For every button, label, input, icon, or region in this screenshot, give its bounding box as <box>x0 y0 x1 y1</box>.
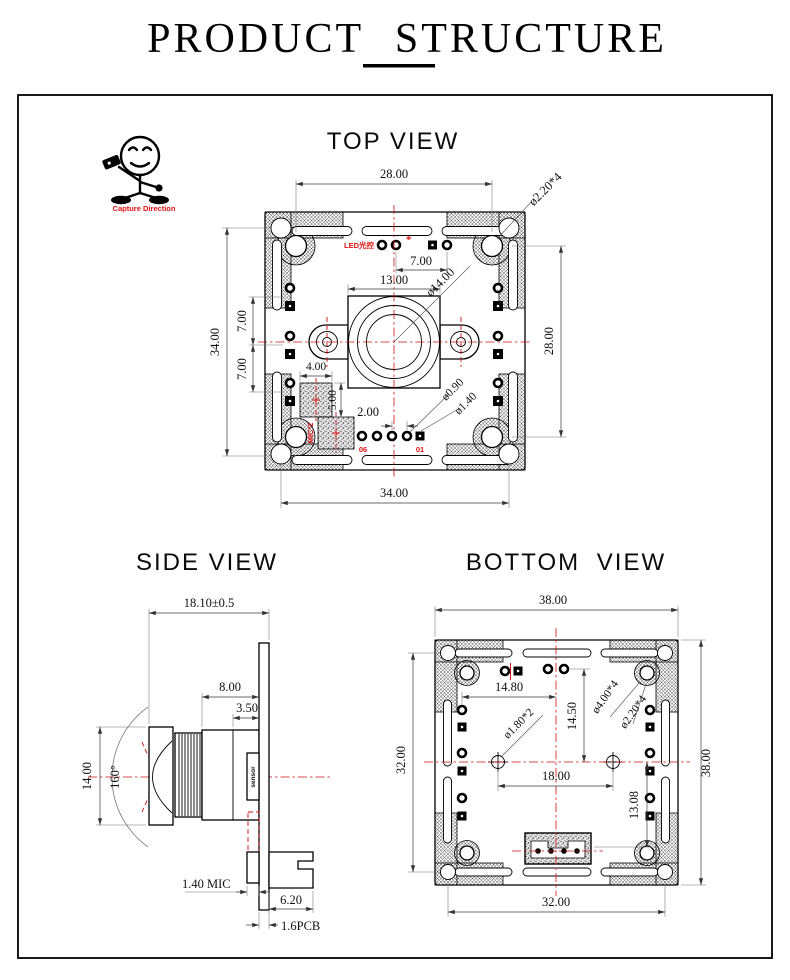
dim-led-pitch-lower: 7.00 <box>235 358 249 380</box>
led-label: LED光控 <box>344 240 374 250</box>
bottom-view: BOTTOM VIEW <box>394 549 713 917</box>
sensor-label: sensor <box>250 766 257 788</box>
dim-pcb-thickness: 1.6PCB <box>281 919 320 933</box>
top-view: TOP VIEW <box>208 128 566 508</box>
page-title: PRODUCT STRUCTURE <box>147 16 667 62</box>
dim-right-28: 28.00 <box>542 327 556 355</box>
side-mic <box>247 852 259 883</box>
title-underline <box>363 64 435 68</box>
dim-corner-hole: ø2.20*4 <box>526 169 565 208</box>
dim-lens-14: 14.00 <box>80 762 94 790</box>
top-view-title: TOP VIEW <box>327 128 459 155</box>
dim-flange-depth: 3.50 <box>236 701 258 715</box>
dim-pad-pitch: 2.00 <box>357 405 379 419</box>
dim-fov: 160° <box>108 765 122 789</box>
dim-led-offset: 7.00 <box>410 254 432 268</box>
bottom-view-title: BOTTOM VIEW <box>466 549 666 576</box>
side-view-title: SIDE VIEW <box>136 549 278 576</box>
side-pcb <box>259 643 269 910</box>
dim-bv-14-80: 14.80 <box>495 680 523 694</box>
dim-bv-14-50: 14.50 <box>565 702 579 730</box>
product-structure-drawing: PRODUCT STRUCTURE Capture Direction TOP … <box>0 0 790 980</box>
side-connector <box>269 852 313 888</box>
dim-bv-bottom-32: 32.00 <box>542 895 570 909</box>
dim-bv-left-32: 32.00 <box>394 746 408 774</box>
mic-label: MIC*2 <box>306 423 315 444</box>
dim-holder-13: 13.00 <box>380 273 408 287</box>
dim-led-pitch-upper: 7.00 <box>235 310 249 332</box>
dim-mic-w: 4.00 <box>306 361 326 373</box>
dim-mic-thickness: 1.40 MIC <box>182 877 231 891</box>
led-mark: * <box>406 234 412 246</box>
pin-label-01: 01 <box>416 445 424 454</box>
dim-bv-top-38: 38.00 <box>539 593 567 607</box>
dim-mic-h: 5.00 <box>327 390 339 410</box>
pin-label-06: 06 <box>359 445 367 454</box>
dim-bv-18: 18.00 <box>542 769 570 783</box>
capture-direction-icon: Capture Direction <box>102 137 176 213</box>
dim-holder-depth: 8.00 <box>219 680 241 694</box>
dim-bottom-34: 34.00 <box>380 486 408 500</box>
bottom-connector <box>525 833 591 864</box>
dim-bv-right-38: 38.00 <box>699 749 713 777</box>
dim-left-34: 34.00 <box>208 328 222 356</box>
capture-direction-label: Capture Direction <box>113 204 176 213</box>
dim-bv-13-08: 13.08 <box>627 791 641 819</box>
dim-connector-depth: 6.20 <box>280 893 302 907</box>
side-view: SIDE VIEW sensor <box>80 549 332 933</box>
dim-total-depth: 18.10±0.5 <box>184 596 235 610</box>
dim-top-28: 28.00 <box>380 167 408 181</box>
